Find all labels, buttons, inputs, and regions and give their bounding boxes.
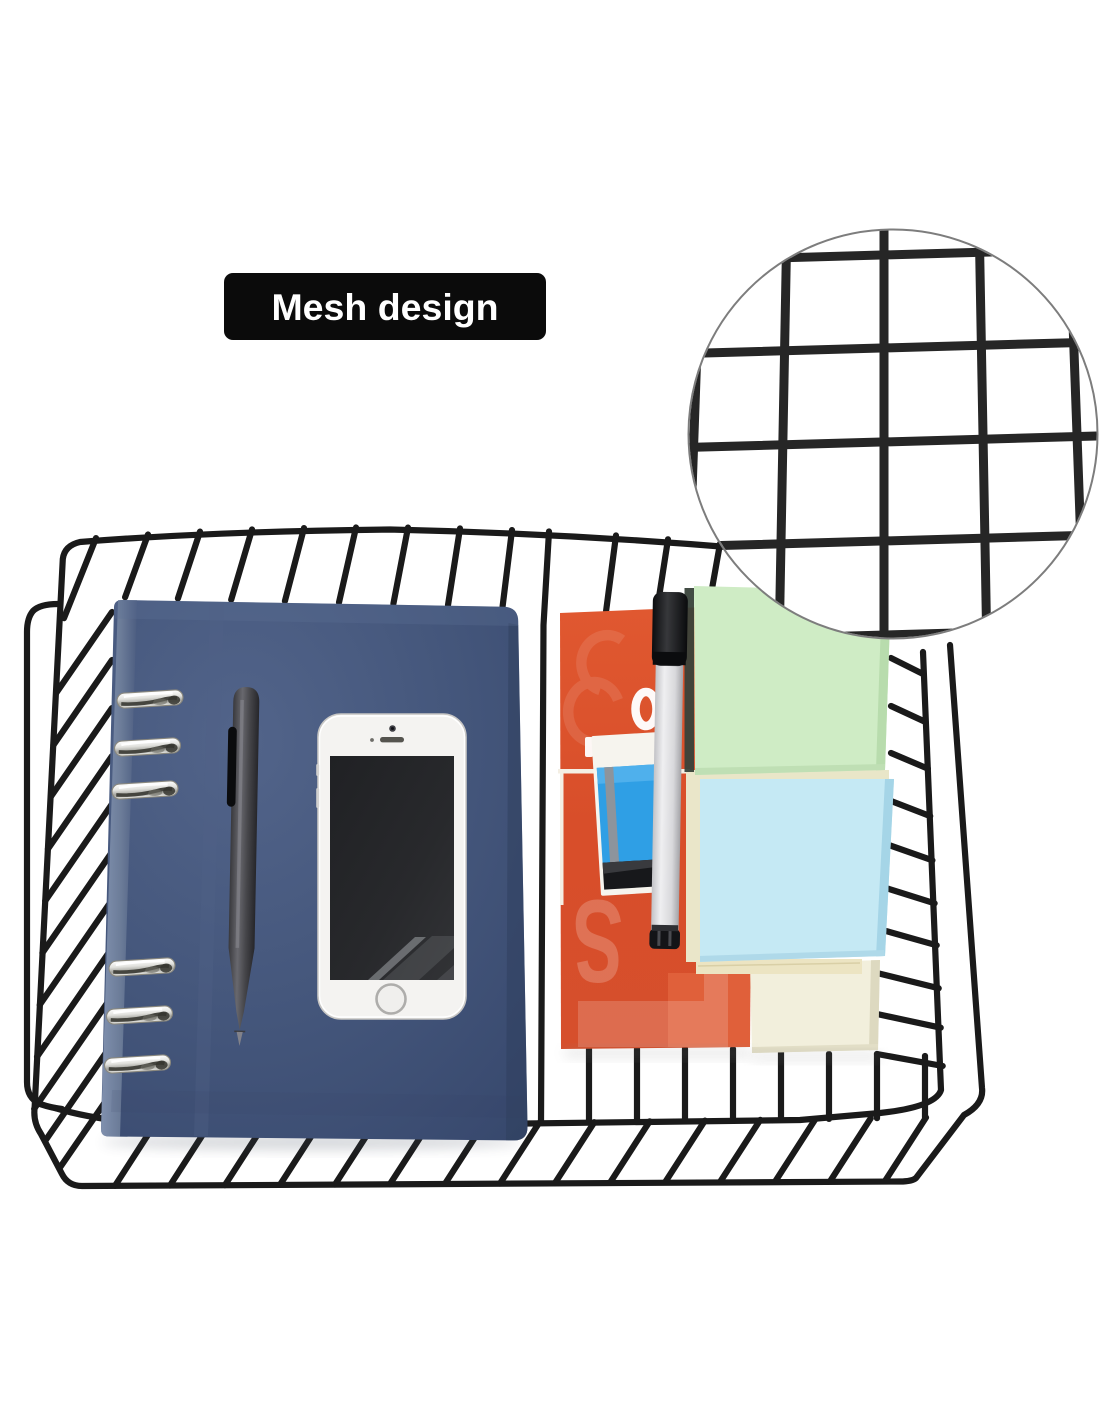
svg-text:S: S: [573, 875, 623, 1007]
svg-text:Mesh design: Mesh design: [271, 286, 498, 328]
